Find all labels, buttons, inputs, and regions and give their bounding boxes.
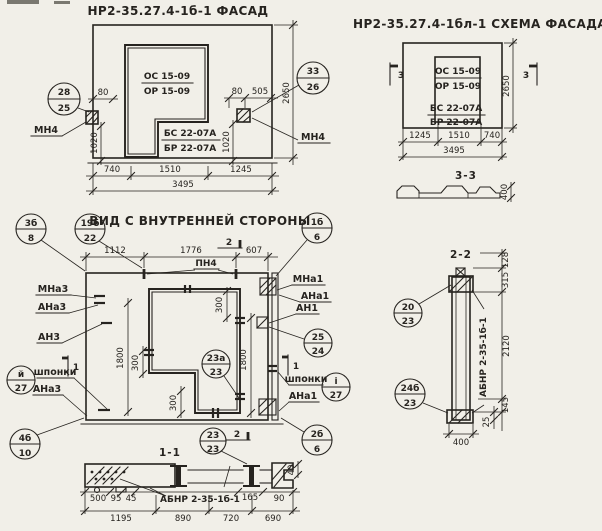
flag-2-bottom: 2 — [234, 430, 240, 440]
dim-890: 890 — [175, 514, 191, 524]
dim-500: 500 — [90, 494, 106, 504]
section-flag-1-right: 1 — [282, 355, 299, 375]
dim-40: 40 — [287, 465, 297, 476]
dim-3495: 3495 — [443, 146, 465, 156]
dim-400: 400 — [453, 438, 469, 448]
dim-90: 90 — [274, 494, 285, 504]
dim-1776: 1776 — [180, 246, 202, 256]
sill-mark-bot: БР 22-07А — [164, 144, 216, 154]
facade-view: НР2-35.27.4-1б-1 ФАСАД ОС 15-09 ОР 15-09… — [31, 4, 330, 195]
dim-2650: 2650 — [282, 82, 292, 104]
ana1-label: АНа1 — [301, 291, 329, 302]
sill-mark-top: БС 22-07А — [164, 129, 216, 139]
flag-2-top: 2 — [226, 238, 232, 248]
section-2-2-title: 2-2 — [450, 249, 472, 261]
label-ana3: АНа3 — [36, 302, 98, 313]
callout-bot: 10 — [19, 449, 32, 459]
dim-80-right: 80 — [232, 87, 243, 97]
anchor-label: МН4 — [301, 132, 325, 143]
dim-128: 128 — [501, 252, 511, 268]
callout-top: 23 — [207, 431, 220, 441]
callout-bot: 26 — [307, 83, 320, 93]
section-3-3: 3-3 400 — [397, 170, 515, 202]
ana3-lower-label: АНа3 — [33, 384, 61, 395]
schema-opening-mark: ОС 15-09 ОР 15-09 — [435, 67, 481, 92]
opening-mark-bot: ОР 15-09 — [435, 82, 481, 92]
label-ana1-lower: АНа1 — [279, 391, 319, 411]
dim-145: 145 — [501, 397, 511, 413]
callout-bot: 23 — [207, 445, 220, 455]
callout-bot: 23 — [210, 368, 223, 378]
pn4-label: ПН4 — [195, 259, 216, 269]
section-1-1: 1-1 — [80, 447, 302, 524]
dim-720: 720 — [223, 514, 239, 524]
section-3-3-profile — [397, 186, 500, 198]
callout-top: 33 — [307, 67, 320, 77]
inner-dim-1800-right: 1800 — [239, 313, 255, 418]
dim-1800-right: 1800 — [239, 349, 249, 371]
schema-sill-mark: БС 22-07А БР 22-07А — [428, 104, 485, 128]
dim-45: 45 — [126, 494, 137, 504]
callout-top: 23а — [207, 354, 226, 364]
section-2-2-channel-bottom — [447, 410, 473, 423]
mna1-label: МНа1 — [293, 274, 323, 285]
inner-dim-1800-left: 1800 — [116, 298, 132, 416]
dim-1245: 1245 — [230, 165, 252, 175]
inner-panel-outline — [81, 273, 283, 424]
shponki-label: шпонки — [285, 374, 328, 385]
section-1-1-left-block — [85, 464, 175, 493]
dim-1195: 1195 — [110, 514, 132, 524]
shponki-label: шпонки — [34, 367, 77, 378]
facade-embed-left — [86, 111, 98, 124]
drawing-canvas: НР2-35.27.4-1б-1 ФАСАД ОС 15-09 ОР 15-09… — [0, 0, 602, 531]
label-mna3: МНа3 — [36, 284, 96, 298]
facade-anchor-left: МН4 — [31, 122, 86, 136]
dim-315: 315 — [501, 272, 511, 288]
section-2-2: 2-2 20 23 24б 23 — [394, 249, 512, 448]
panel-keys-left-top — [94, 296, 105, 303]
facade-dim-2650: 2650 — [274, 20, 298, 165]
schema-section-mark-left: 3 — [390, 63, 404, 85]
dim-95: 95 — [111, 494, 122, 504]
dim-740: 740 — [104, 165, 120, 175]
callout-24b-23: 24б 23 — [395, 379, 448, 413]
beam-mark-label: АБНР 2-35-1б-1 — [160, 494, 240, 505]
section-3-3-title: 3-3 — [455, 170, 477, 182]
facade-embed-right — [237, 109, 250, 122]
callout-top: 3б — [25, 218, 38, 229]
dim-740: 740 — [484, 131, 500, 141]
callout-top: 4б — [19, 433, 32, 444]
dim-165: 165 — [242, 493, 258, 503]
callout-top: 24б — [401, 383, 420, 394]
callout-bot: 6 — [314, 233, 320, 243]
label-ana3-lower: АНа3 — [33, 384, 110, 416]
callout-top: 19б — [81, 218, 100, 229]
callout-key-right: і 27 — [322, 373, 350, 401]
facade-dim-80-505-right: 80 505 — [224, 87, 278, 108]
scan-smudges — [7, 0, 70, 4]
callout-2b-6: 2б 6 — [281, 418, 332, 455]
opening-mark-top: ОС 15-09 — [144, 72, 190, 82]
dim-2120: 2120 — [502, 335, 512, 357]
facade-dim-bottom-row: 740 1510 1245 3495 — [86, 163, 279, 195]
label-an3: АН3 — [37, 323, 112, 343]
callout-bot: 27 — [330, 391, 343, 401]
facade-title: НР2-35.27.4-1б-1 ФАСАД — [87, 4, 268, 18]
callout-bot: 8 — [28, 234, 34, 244]
inner-dim-top-row: 1112 1776 607 — [80, 246, 278, 271]
section-1-1-title: 1-1 — [159, 447, 181, 459]
dim-1020-right: 1020 — [222, 131, 232, 153]
section-2-2-panel — [452, 277, 470, 420]
dim-400: 400 — [500, 184, 510, 200]
section-flag-2-top: 2 — [218, 238, 242, 248]
ana3-label: АНа3 — [38, 302, 66, 313]
schema-view: НР2-35.27.4-1бл-1 СХЕМА ФАСАДА ОС 15-09 … — [353, 17, 602, 161]
mna3-label: МНа3 — [38, 284, 68, 295]
facade-sill-mark: БС 22-07А БР 22-07А — [162, 129, 220, 154]
callout-4b-10: 4б 10 — [10, 418, 84, 459]
anchor-label: МН4 — [34, 125, 58, 136]
dim-1245: 1245 — [409, 131, 431, 141]
callout-top: 2б — [311, 429, 324, 440]
callout-bot: 23 — [404, 399, 417, 409]
dim-300-bottom: 300 — [169, 395, 179, 411]
section-2-2-beam-mark: АБНР 2-35-1б-1 — [472, 290, 489, 413]
callout-key-left: й 27 — [7, 366, 35, 394]
rib-embed-middle — [257, 317, 268, 328]
facade-opening-mark: ОС 15-09 ОР 15-09 — [142, 72, 193, 97]
scanned-construction-drawing: НР2-35.27.4-1б-1 ФАСАД ОС 15-09 ОР 15-09… — [0, 0, 602, 531]
section-2-2-dim-400: 400 — [443, 424, 479, 448]
callout-20-23: 20 23 — [394, 285, 451, 327]
callout-3b-8: 3б 8 — [16, 214, 85, 271]
callout-bot: 22 — [84, 234, 97, 244]
dim-505: 505 — [252, 87, 268, 97]
an3-label: АН3 — [38, 332, 60, 343]
inner-view-title: ВИД С ВНУТРЕННЕЙ СТОРОНЫ — [89, 213, 310, 228]
callout-top: 28 — [58, 88, 71, 98]
callout-bot: 6 — [314, 445, 320, 455]
facade-callout-left: 28 25 — [48, 83, 89, 115]
dim-3495: 3495 — [172, 180, 194, 190]
callout-23a-23: 23а 23 — [202, 350, 239, 398]
callout-bot: 27 — [15, 384, 28, 394]
schema-dim-2650: 2650 — [502, 38, 517, 133]
section-1-1-dim-lower-row: 1195 890 720 690 — [80, 487, 300, 524]
dim-2650: 2650 — [502, 75, 512, 97]
dim-690: 690 — [265, 514, 281, 524]
section-mark-3-right: 3 — [523, 71, 529, 81]
label-mna1: МНа1 — [277, 274, 325, 290]
dim-25: 25 — [482, 417, 492, 428]
pn4-connector-label: ПН4 — [144, 259, 236, 279]
label-ana1: АНа1 — [279, 291, 331, 302]
section-flag-2-bottom: 2 — [226, 430, 250, 440]
facade-anchor-right: МН4 — [252, 118, 330, 143]
sill-mark-top: БС 22-07А — [430, 104, 482, 114]
section-3-3-dim-400: 400 — [500, 182, 515, 202]
dim-1510: 1510 — [159, 165, 181, 175]
label-shponki-right: шпонки — [278, 372, 327, 385]
schema-section-mark-right: 3 — [523, 63, 537, 85]
callout-top: 20 — [402, 303, 415, 313]
inner-view: ВИД С ВНУТРЕННЕЙ СТОРОНЫ 1112 1776 607 — [7, 213, 350, 464]
label-an1: АН1 — [269, 303, 319, 323]
dim-1020-left: 1020 — [90, 132, 100, 154]
opening-mark-bot: ОР 15-09 — [144, 87, 190, 97]
dim-1510: 1510 — [448, 131, 470, 141]
dim-607: 607 — [246, 246, 262, 256]
an1-label: АН1 — [296, 303, 318, 314]
rib-embed-top — [260, 278, 276, 295]
inner-window-opening — [149, 289, 240, 413]
callout-bot: 23 — [402, 317, 415, 327]
flag-1-right: 1 — [293, 362, 299, 372]
section-1-1-slab — [188, 466, 272, 487]
dim-80-left: 80 — [98, 88, 109, 98]
schema-dim-bottom-row: 1245 1510 740 3495 — [398, 124, 507, 161]
beam-mark-label: АБНР 2-35-1б-1 — [478, 317, 489, 397]
dim-300-left: 300 — [131, 355, 141, 371]
ana1-lower-label: АНа1 — [289, 391, 317, 402]
section-1-1-ibeam-left — [170, 466, 187, 486]
inner-dim-300-bottom: 300 — [169, 386, 185, 418]
callout-top: 25 — [312, 333, 325, 343]
schema-title: НР2-35.27.4-1бл-1 СХЕМА ФАСАДА — [353, 17, 602, 31]
callout-top: 1б — [311, 217, 324, 228]
dim-300-top: 300 — [215, 297, 225, 313]
dim-1800-left: 1800 — [116, 347, 126, 369]
callout-top: й — [18, 370, 24, 380]
callout-top: і — [334, 376, 337, 387]
section-1-1-ibeam-right — [243, 466, 260, 486]
callout-bot: 24 — [312, 347, 325, 357]
opening-mark-top: ОС 15-09 — [435, 67, 481, 77]
callout-bot: 25 — [58, 104, 71, 114]
section-mark-3-left: 3 — [398, 71, 404, 81]
